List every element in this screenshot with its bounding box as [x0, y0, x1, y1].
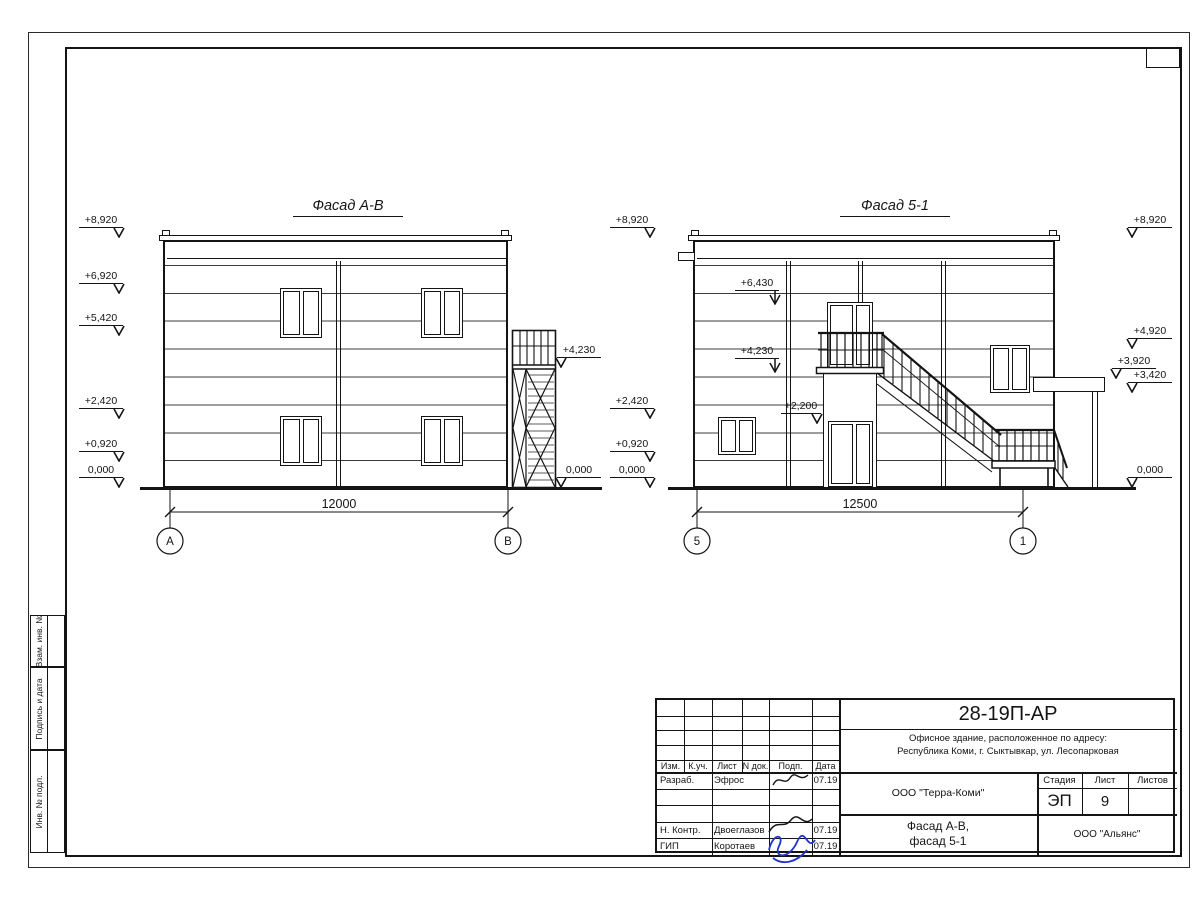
elevation-mark: +3,920 [1112, 356, 1156, 369]
col-header-list: Лист [712, 760, 742, 772]
col-header-ndok: N док. [742, 760, 769, 772]
elevation-mark: +6,430 [735, 278, 779, 291]
row-name: Двоеглазов [714, 822, 770, 838]
elevation-mark: +5,420 [79, 313, 123, 326]
elevation-mark: +4,230 [557, 345, 601, 358]
axis-label: В [504, 536, 512, 548]
axis-label: А [166, 536, 174, 548]
balcony-slab [817, 368, 884, 374]
doc-number: 28-19П-АР [839, 700, 1177, 729]
dimension-value: 12000 [322, 497, 357, 511]
elevation-mark: +4,230 [735, 346, 779, 359]
elevation-mark: +0,920 [610, 439, 654, 452]
design-org: ООО "Терра-Коми" [839, 772, 1037, 814]
panel-joint [786, 261, 791, 487]
axis-label: 5 [694, 536, 700, 548]
cornice-line [697, 258, 1053, 259]
row-date: 07.19 [812, 772, 839, 789]
canopy-post [1092, 392, 1098, 488]
window [421, 288, 463, 338]
stage-label: Стадия [1037, 772, 1082, 788]
corner-stamp-box [1146, 47, 1180, 68]
elevation-mark: +0,920 [79, 439, 123, 452]
window [718, 417, 756, 455]
elevation-mark: 0,000 [610, 465, 654, 478]
dimension-value: 12500 [843, 497, 878, 511]
elevation-mark: +6,920 [79, 271, 123, 284]
cornice-line [167, 258, 506, 259]
sheet-subject: Фасад А-В, фасад 5-1 [839, 819, 1037, 849]
row-name: Эфрос [714, 772, 768, 789]
margin-label: Подпись и дата [31, 668, 48, 749]
sheets-total [1128, 788, 1177, 814]
dimension-group-51: 12500 5 1 [668, 489, 1148, 557]
window [280, 288, 322, 338]
exterior-stair [815, 325, 1075, 493]
elevation-mark: +8,920 [610, 215, 654, 228]
row-role: ГИП [660, 838, 710, 855]
margin-label: Инв. № подл. [31, 751, 48, 852]
wall-ledge [678, 252, 695, 261]
col-header-kuch: К.уч. [684, 760, 712, 772]
margin-box-zam-inv: Взам. инв. № [30, 615, 65, 667]
landing-slab [992, 461, 1055, 468]
panel-joint [336, 261, 341, 487]
stage-value: ЭП [1037, 788, 1082, 814]
axis-label: 1 [1020, 536, 1026, 548]
col-header-izm: Изм. [657, 760, 684, 772]
elevation-mark: +2,420 [79, 396, 123, 409]
elevation-mark: +8,920 [1128, 215, 1172, 228]
elevation-mark: +8,920 [79, 215, 123, 228]
elevation-mark: 0,000 [1128, 465, 1172, 478]
dimension-group-ab: 12000 А В [138, 489, 588, 557]
facade-ab-title: Фасад А-В [293, 198, 403, 217]
row-name: Коротаев [714, 838, 770, 855]
margin-box-podpis-data: Подпись и дата [30, 667, 65, 750]
exterior-stair-tower [511, 329, 557, 490]
elevation-mark: +2,420 [610, 396, 654, 409]
facade-51-title: Фасад 5-1 [840, 198, 950, 217]
elevation-mark: +4,920 [1128, 326, 1172, 339]
window [280, 416, 322, 466]
sheet-label: Лист [1082, 772, 1128, 788]
elevation-mark: +2,200 [781, 401, 821, 414]
margin-box-inv-podl: Инв. № подл. [30, 750, 65, 853]
elevation-mark: +3,420 [1128, 370, 1172, 383]
signature-blue [763, 826, 819, 870]
sheet-number: 9 [1082, 788, 1128, 814]
elevation-mark: 0,000 [79, 465, 123, 478]
row-role: Н. Контр. [660, 822, 710, 838]
sheets-label: Листов [1128, 772, 1177, 788]
window [421, 416, 463, 466]
project-name: Офисное здание, расположенное по адресу:… [839, 733, 1177, 758]
elevation-mark: 0,000 [557, 465, 601, 478]
col-header-data: Дата [812, 760, 839, 772]
margin-label: Взам. инв. № [31, 616, 48, 666]
drawing-sheet: Фасад А-В +8,920 +6,920 +5,420 +2,420 +0… [0, 0, 1200, 900]
signature [769, 770, 812, 792]
title-block: Изм. К.уч. Лист N док. Подп. Дата Разраб… [655, 698, 1175, 853]
contractor-org: ООО "Альянс" [1037, 814, 1177, 855]
row-role: Разраб. [660, 772, 710, 789]
